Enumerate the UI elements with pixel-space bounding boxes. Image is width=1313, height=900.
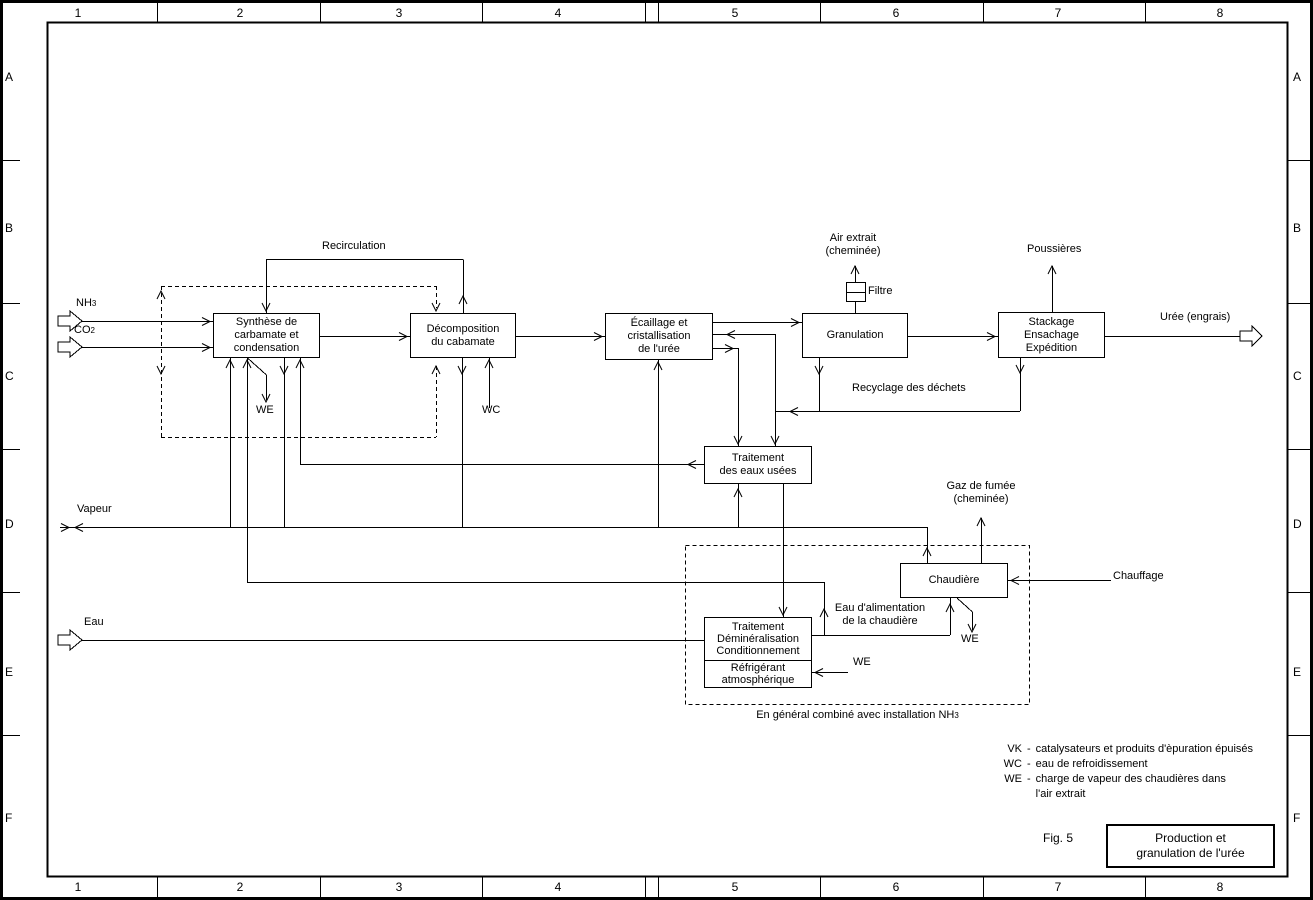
- label-poussieres: Poussières: [1027, 243, 1081, 256]
- eau-feed-arrow: [58, 630, 82, 650]
- legend: VK - catalysateurs et produits d'èpurati…: [996, 742, 1253, 802]
- node-label: Décomposition du cabamate: [427, 323, 500, 349]
- grid-row-label: C: [1293, 369, 1302, 383]
- legend-separator: -: [1027, 742, 1031, 757]
- legend-desc: eau de refroidissement: [1036, 757, 1148, 772]
- grid-row-label: F: [5, 811, 12, 825]
- node-label: Traitement des eaux usées: [719, 452, 796, 478]
- label-eau: Eau: [84, 616, 104, 629]
- legend-item-we: WE - charge de vapeur des chaudières dan…: [996, 772, 1253, 802]
- node-label: Traitement Déminéralisation Conditionnem…: [716, 621, 799, 657]
- label-uree-engrais: Urée (engrais): [1160, 311, 1230, 324]
- label-air-extrait: Air extrait (cheminée): [807, 232, 899, 258]
- drawing-sheet: 1 2 3 4 5 6 7 8 1 2 3 4 5 6 7 8 A B C D …: [0, 0, 1313, 900]
- label-we-synthese: WE: [256, 404, 274, 417]
- formula-base: CO: [74, 324, 91, 336]
- grid-row-label: A: [1293, 70, 1301, 84]
- grid-col-label: 8: [1217, 880, 1224, 894]
- grid-col-label: 8: [1217, 6, 1224, 20]
- uree-product-arrow: [1240, 326, 1262, 346]
- node-stackage-ensachage: Stackage Ensachage Expédition: [998, 312, 1105, 358]
- label-vapeur: Vapeur: [77, 503, 112, 516]
- drawing-title: Production et granulation de l'urée: [1136, 831, 1244, 861]
- grid-col-label: 2: [237, 6, 244, 20]
- label-recyclage-dechets: Recyclage des déchets: [852, 382, 966, 395]
- grid-row-label: B: [5, 221, 13, 235]
- grid-col-label: 5: [732, 6, 739, 20]
- label-filtre: Filtre: [868, 285, 892, 298]
- grid-row-label: B: [1293, 221, 1301, 235]
- grid-row-label: C: [5, 369, 14, 383]
- label-en-general: En général combiné avec installation NH3: [685, 709, 1030, 722]
- legend-desc: catalysateurs et produits d'èpuration ép…: [1036, 742, 1253, 757]
- label-we-chaudiere: WE: [961, 633, 979, 646]
- node-refrigerant-atmospherique: Réfrigérant atmosphérique: [704, 660, 812, 688]
- hollow-arrows: [58, 311, 1262, 650]
- label-co2: CO2: [74, 324, 95, 337]
- node-label: Écaillage et cristallisation de l'urée: [628, 317, 691, 356]
- legend-separator: -: [1027, 757, 1031, 772]
- formula-sub: 3: [92, 299, 96, 308]
- legend-desc: charge de vapeur des chaudières dans l'a…: [1036, 772, 1226, 802]
- node-chaudiere: Chaudière: [900, 563, 1008, 598]
- grid-col-label: 7: [1055, 880, 1062, 894]
- label-we-refrigerant: WE: [853, 656, 871, 669]
- grid-row-label: F: [1293, 811, 1300, 825]
- legend-item-wc: WC - eau de refroidissement: [996, 757, 1253, 772]
- grid-row-label: D: [5, 517, 14, 531]
- figure-number: Fig. 5: [1043, 831, 1073, 845]
- node-label: Granulation: [827, 329, 884, 342]
- label-wc-decomposition: WC: [482, 404, 500, 417]
- grid-col-label: 7: [1055, 6, 1062, 20]
- grid-row-label: A: [5, 70, 13, 84]
- node-label: Synthèse de carbamate et condensation: [234, 316, 299, 355]
- node-traitement-demineralisation: Traitement Déminéralisation Conditionnem…: [704, 617, 812, 661]
- grid-col-label: 6: [893, 6, 900, 20]
- co2-feed-arrow: [58, 337, 82, 357]
- label-eau-alimentation: Eau d'alimentation de la chaudière: [828, 602, 932, 628]
- grid-col-label: 1: [75, 880, 82, 894]
- node-granulation: Granulation: [802, 313, 908, 358]
- grid-col-label: 4: [555, 880, 562, 894]
- formula-sub: 3: [954, 711, 958, 720]
- grid-col-label: 6: [893, 880, 900, 894]
- formula-base: NH: [76, 297, 92, 309]
- grid-col-label: 5: [732, 880, 739, 894]
- grid-col-label: 1: [75, 6, 82, 20]
- label-gaz-fumee: Gaz de fumée (cheminée): [933, 480, 1029, 506]
- grid-col-label: 3: [396, 880, 403, 894]
- label-chauffage: Chauffage: [1113, 570, 1164, 583]
- grid-row-label: E: [5, 665, 13, 679]
- node-ecaillage-cristallisation: Écaillage et cristallisation de l'urée: [605, 313, 713, 360]
- grid-row-label: D: [1293, 517, 1302, 531]
- legend-code: VK: [996, 742, 1022, 757]
- label-recirculation: Recirculation: [322, 240, 386, 253]
- grid-row-label: E: [1293, 665, 1301, 679]
- title-block: Production et granulation de l'urée: [1106, 824, 1275, 868]
- node-label: Chaudière: [929, 574, 980, 587]
- node-label: Stackage Ensachage Expédition: [1024, 316, 1079, 355]
- node-synthese-carbamate: Synthèse de carbamate et condensation: [213, 313, 320, 358]
- legend-item-vk: VK - catalysateurs et produits d'èpurati…: [996, 742, 1253, 757]
- note-text: En général combiné avec installation NH: [756, 709, 954, 721]
- label-nh3: NH3: [76, 297, 96, 310]
- formula-sub: 2: [91, 326, 95, 335]
- grid-col-label: 4: [555, 6, 562, 20]
- grid-col-label: 3: [396, 6, 403, 20]
- node-label: Réfrigérant atmosphérique: [722, 662, 795, 686]
- legend-code: WC: [996, 757, 1022, 772]
- legend-code: WE: [996, 772, 1022, 802]
- legend-separator: -: [1027, 772, 1031, 802]
- filtre-symbol: [847, 283, 866, 302]
- node-decomposition-carbamate: Décomposition du cabamate: [410, 313, 516, 358]
- node-traitement-eaux-usees: Traitement des eaux usées: [704, 446, 812, 484]
- grid-col-label: 2: [237, 880, 244, 894]
